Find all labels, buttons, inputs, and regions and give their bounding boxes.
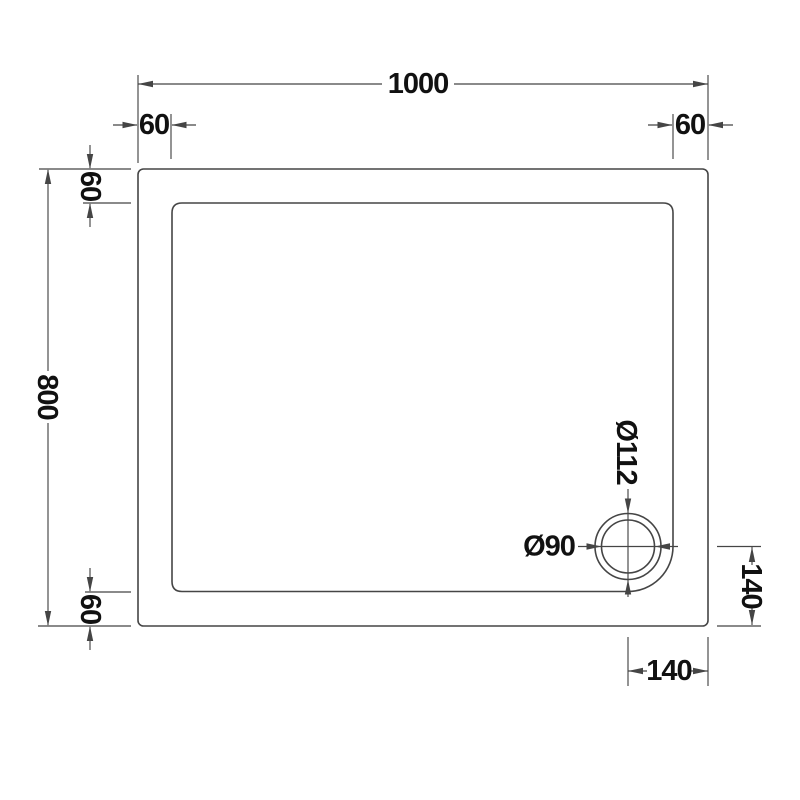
arrowhead bbox=[123, 122, 138, 128]
arrowhead bbox=[658, 122, 673, 128]
arrowhead bbox=[45, 611, 51, 626]
dim-flange-left-top: 60 bbox=[74, 145, 131, 227]
dim-label-flange-left-top: 60 bbox=[74, 171, 106, 201]
arrowhead bbox=[693, 81, 708, 87]
arrowhead bbox=[628, 668, 643, 674]
arrowhead bbox=[172, 122, 187, 128]
dim-label-flange-top-right: 60 bbox=[675, 109, 705, 141]
arrowhead bbox=[625, 499, 631, 514]
dim-overall-width: 1000 bbox=[138, 68, 708, 163]
arrowhead bbox=[587, 543, 602, 549]
arrowhead bbox=[749, 547, 755, 562]
dim-label-overall-depth: 800 bbox=[31, 374, 63, 419]
dim-label-waste-outer-diameter: Ø112 bbox=[610, 419, 642, 484]
dim-flange-top-left: 60 bbox=[113, 109, 196, 159]
arrowhead bbox=[749, 610, 755, 625]
arrowhead bbox=[87, 577, 93, 592]
dim-flange-left-bottom: 60 bbox=[74, 568, 131, 650]
dim-waste-inner-diameter: Ø90 bbox=[523, 531, 678, 563]
arrowhead bbox=[138, 81, 153, 87]
dim-label-flange-top-left: 60 bbox=[139, 109, 169, 141]
dim-waste-offset-right-side: 140 bbox=[717, 547, 767, 627]
arrowhead bbox=[87, 626, 93, 641]
arrowhead bbox=[87, 154, 93, 169]
dim-label-flange-left-bottom: 60 bbox=[74, 594, 106, 624]
technical-drawing-canvas: 1000 60 60 800 60 bbox=[0, 0, 800, 800]
dim-label-waste-offset-right-side: 140 bbox=[735, 563, 767, 608]
dim-waste-offset-bottom: 140 bbox=[628, 637, 708, 687]
shower-tray-plan bbox=[138, 169, 708, 626]
arrowhead bbox=[45, 169, 51, 184]
arrowhead bbox=[625, 580, 631, 595]
drawing-sheet: 1000 60 60 800 60 bbox=[0, 0, 800, 800]
arrowhead bbox=[87, 203, 93, 218]
dim-flange-top-right: 60 bbox=[648, 109, 733, 159]
dim-overall-depth: 800 bbox=[31, 169, 131, 626]
dim-label-waste-inner-diameter: Ø90 bbox=[523, 531, 575, 563]
arrowhead bbox=[693, 668, 708, 674]
arrowhead bbox=[708, 122, 723, 128]
tray-outer-edge bbox=[138, 169, 708, 626]
dim-label-waste-offset-bottom: 140 bbox=[646, 655, 691, 687]
dim-label-overall-width: 1000 bbox=[388, 68, 449, 100]
arrowhead bbox=[655, 543, 670, 549]
